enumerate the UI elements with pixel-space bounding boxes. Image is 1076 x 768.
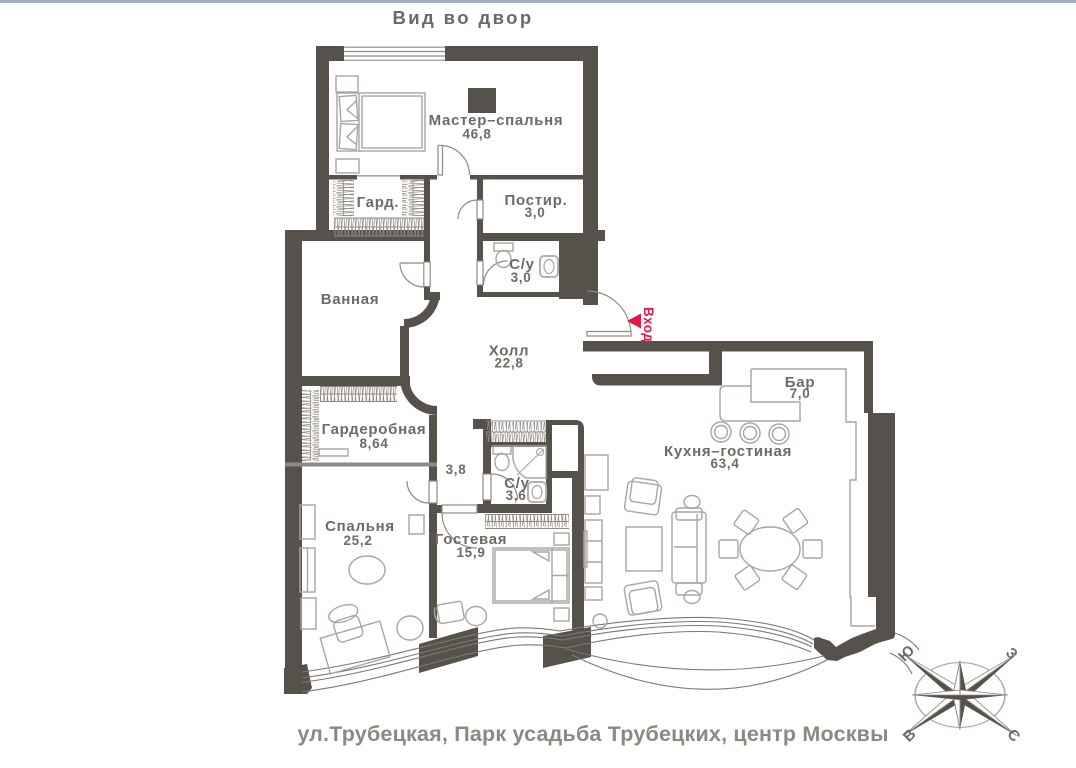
svg-text:3,8: 3,8 [446,462,467,477]
svg-text:8,64: 8,64 [359,436,388,451]
svg-text:ул.Трубецкая, Парк усадьба Тру: ул.Трубецкая, Парк усадьба Трубецких, це… [297,722,888,746]
svg-text:З: З [1002,644,1021,663]
svg-text:Вход: Вход [641,307,656,342]
svg-text:3,0: 3,0 [525,205,546,220]
svg-text:В: В [900,726,920,746]
svg-text:Мастер–спальня: Мастер–спальня [429,112,564,129]
svg-text:7,0: 7,0 [790,386,811,401]
svg-text:3,0: 3,0 [511,270,532,285]
svg-text:Вид во двор: Вид во двор [392,7,533,28]
svg-text:63,4: 63,4 [710,456,739,471]
svg-text:3,6: 3,6 [506,488,527,503]
svg-text:46,8: 46,8 [462,127,491,142]
svg-text:15,9: 15,9 [456,545,485,560]
svg-text:Гард.: Гард. [357,194,400,211]
svg-text:Ванная: Ванная [321,291,380,308]
svg-text:25,2: 25,2 [343,533,372,548]
svg-text:22,8: 22,8 [494,356,523,371]
